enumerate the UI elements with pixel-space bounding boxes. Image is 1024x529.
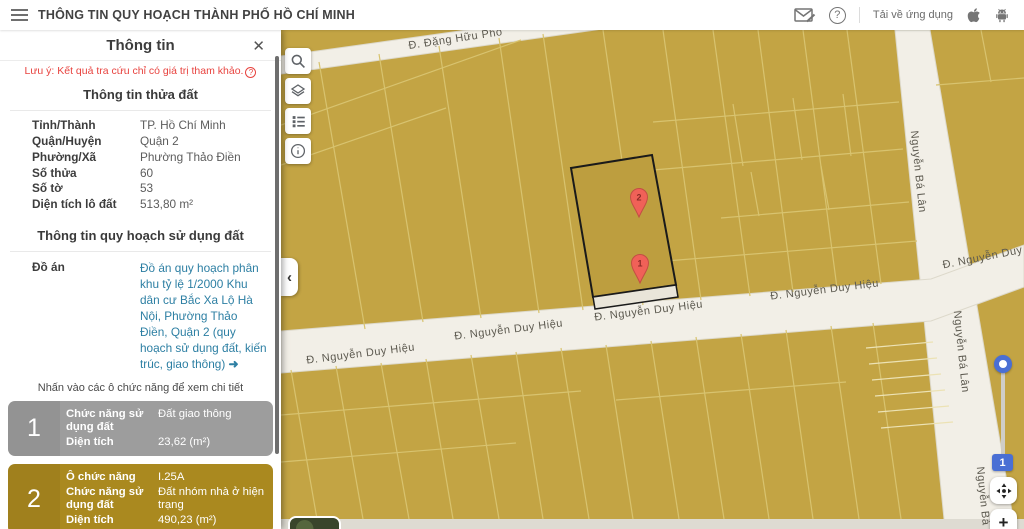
download-app-label: Tải về ứng dụng <box>873 9 953 21</box>
field-row: Tỉnh/Thành TP. Hồ Chí Minh <box>0 118 281 134</box>
zone-label: Chức năng sử dụng đất <box>66 408 158 435</box>
field-label: Quận/Huyện <box>32 135 140 148</box>
zone-rows: Chức năng sử dụng đất Đất giao thông Diệ… <box>60 401 273 457</box>
mail-icon[interactable] <box>794 7 816 24</box>
chevron-left-icon: ‹ <box>287 269 292 286</box>
parcel-section-title: Thông tin thửa đất <box>0 78 281 110</box>
zone-number: 2 <box>8 464 60 529</box>
zone-row: Chức năng sử dụng đất Đất giao thông <box>66 408 265 435</box>
zone-label: Ô chức năng <box>66 471 158 485</box>
layers-icon[interactable] <box>285 78 311 104</box>
info-panel: Thông tin ✕ Lưu ý: Kết quả tra cứu chỉ c… <box>0 30 281 529</box>
zoom-slider-track[interactable] <box>1001 366 1005 458</box>
zone-value: 490,23 (m²) <box>158 514 265 528</box>
field-value: 53 <box>140 182 281 195</box>
planning-section-title: Thông tin quy hoạch sử dụng đất <box>0 219 281 251</box>
zoom-in-button[interactable]: + <box>990 509 1017 529</box>
field-row: Diện tích lô đất 513,80 m² <box>0 197 281 213</box>
info-icon[interactable] <box>285 138 311 164</box>
close-icon[interactable]: ✕ <box>252 37 265 55</box>
field-value: Phường Thảo Điền <box>140 151 281 164</box>
zone-value: I.25A <box>158 471 265 485</box>
map-toolbar <box>285 48 311 164</box>
zone-rows: Ô chức năng I.25A Chức năng sử dụng đất … <box>60 464 273 529</box>
field-value: Quận 2 <box>140 135 281 148</box>
zone-row: Diện tích 490,23 (m²) <box>66 514 265 528</box>
field-label: Số thửa <box>32 167 140 180</box>
zone-value: Đất giao thông <box>158 408 265 435</box>
pin-label: 1 <box>637 259 642 269</box>
map-canvas[interactable]: Đ. Đặng Hữu Phổ Đ. Nguyễn Duy Hiệu Đ. Ng… <box>281 30 1024 529</box>
field-label: Tỉnh/Thành <box>32 119 140 132</box>
do-an-label: Đồ án <box>32 260 140 372</box>
help-icon[interactable]: ? <box>829 7 846 24</box>
field-value: 513,80 m² <box>140 198 281 211</box>
field-label: Số tờ <box>32 182 140 195</box>
zone-number: 1 <box>8 401 60 457</box>
field-row: Quận/Huyện Quận 2 <box>0 134 281 150</box>
parcel-fields: Tỉnh/Thành TP. Hồ Chí Minh Quận/Huyện Qu… <box>0 111 281 219</box>
header-divider <box>859 7 860 23</box>
do-an-link[interactable]: Đồ án quy hoạch phân khu tỷ lệ 1/2000 Kh… <box>140 260 267 372</box>
do-an-row: Đồ án Đồ án quy hoạch phân khu tỷ lệ 1/2… <box>0 252 281 378</box>
field-row: Phường/Xã Phường Thảo Điền <box>0 150 281 166</box>
zoom-slider-knob[interactable] <box>994 355 1012 373</box>
top-header: THÔNG TIN QUY HOẠCH THÀNH PHỐ HỒ CHÍ MIN… <box>0 0 1024 30</box>
field-row: Số thửa 60 <box>0 165 281 181</box>
map-region[interactable]: Đ. Đặng Hữu Phổ Đ. Nguyễn Duy Hiệu Đ. Ng… <box>281 30 1024 529</box>
field-value: TP. Hồ Chí Minh <box>140 119 281 132</box>
zone-row: Chức năng sử dụng đất Đất nhóm nhà ở hiệ… <box>66 486 265 513</box>
legend-icon[interactable] <box>285 108 311 134</box>
zones-hint: Nhấn vào các ô chức năng để xem chi tiết <box>0 382 281 394</box>
field-row: Số tờ 53 <box>0 181 281 197</box>
basemap-switcher-thumbnail[interactable] <box>288 516 341 529</box>
search-icon[interactable] <box>285 48 311 74</box>
panel-title: Thông tin <box>106 37 174 54</box>
pin-label: 2 <box>636 193 641 203</box>
apple-icon[interactable] <box>966 7 981 24</box>
app-window: THÔNG TIN QUY HOẠCH THÀNH PHỐ HỒ CHÍ MIN… <box>0 0 1024 529</box>
field-label: Phường/Xã <box>32 151 140 164</box>
zone-row: Ô chức năng I.25A <box>66 471 265 485</box>
zone-label: Diện tích <box>66 436 158 450</box>
app-title: THÔNG TIN QUY HOẠCH THÀNH PHỐ HỒ CHÍ MIN… <box>38 8 355 22</box>
panel-header: Thông tin ✕ <box>0 30 281 61</box>
notice-label: Lưu ý: Kết quả tra cứu chỉ có giá trị th… <box>25 65 244 77</box>
menu-icon[interactable] <box>0 0 38 30</box>
field-value: 60 <box>140 167 281 180</box>
arrow-right-icon[interactable]: ➜ <box>229 357 239 371</box>
zone-value: Đất nhóm nhà ở hiện trạng <box>158 486 265 513</box>
zone-label: Diện tích <box>66 514 158 528</box>
panel-collapse-button[interactable]: ‹ <box>281 258 298 296</box>
header-actions: ? Tải về ứng dụng <box>794 7 1024 24</box>
zone-row: Diện tích 23,62 (m²) <box>66 436 265 450</box>
zone-card-1[interactable]: 1 Chức năng sử dụng đất Đất giao thông D… <box>8 401 273 457</box>
field-label: Diện tích lô đất <box>32 198 140 211</box>
panel-scrollbar[interactable] <box>275 56 279 454</box>
zone-card-2[interactable]: 2 Ô chức năng I.25A Chức năng sử dụng đấ… <box>8 464 273 529</box>
zone-label: Chức năng sử dụng đất <box>66 486 158 513</box>
zone-value: 23,62 (m²) <box>158 436 265 450</box>
level-badge[interactable]: 1 <box>992 454 1013 471</box>
locate-button[interactable] <box>990 477 1017 504</box>
android-icon[interactable] <box>994 7 1010 24</box>
plus-icon: + <box>999 513 1009 529</box>
do-an-link-text[interactable]: Đồ án quy hoạch phân khu tỷ lệ 1/2000 Kh… <box>140 261 267 371</box>
notice-text: Lưu ý: Kết quả tra cứu chỉ có giá trị th… <box>0 65 281 78</box>
notice-help-icon[interactable]: ? <box>245 67 256 78</box>
